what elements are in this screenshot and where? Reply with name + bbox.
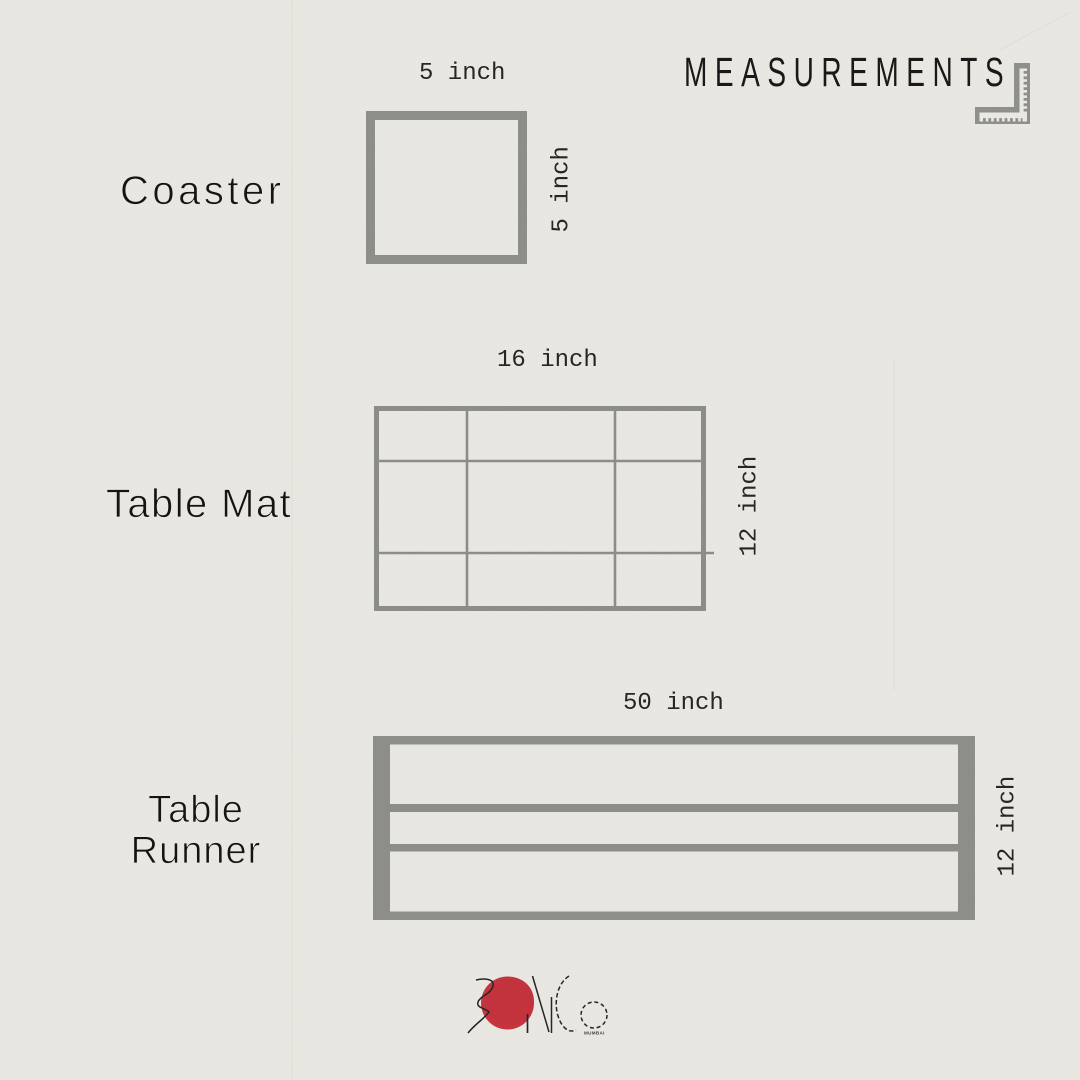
svg-text:MUMBAI: MUMBAI [584,1031,605,1036]
